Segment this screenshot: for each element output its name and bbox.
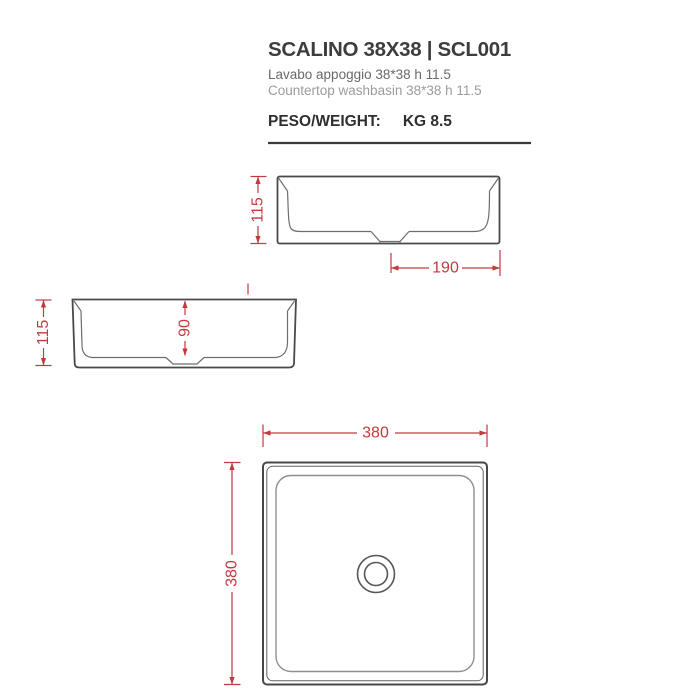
front-rim-chamfer-left bbox=[279, 178, 288, 191]
plan-view: 380 380 bbox=[224, 425, 488, 685]
technical-drawing: 115 190 bbox=[0, 0, 700, 700]
drain-inner-circle bbox=[365, 563, 388, 586]
side-dim-inner-depth-label: 90 bbox=[177, 319, 194, 337]
side-rim-chamfer-right bbox=[288, 301, 295, 311]
front-basin-wall-left bbox=[288, 191, 372, 232]
side-view: 115 90 bbox=[35, 284, 296, 368]
front-dim-drain-label: 190 bbox=[432, 260, 459, 277]
front-view: 115 190 bbox=[250, 177, 501, 277]
plan-rim-line bbox=[267, 466, 483, 681]
front-dim-drain-offset: 190 bbox=[391, 250, 500, 277]
plan-dim-width: 380 bbox=[263, 425, 487, 448]
plan-outline bbox=[263, 463, 487, 685]
drain-outer-circle bbox=[358, 556, 395, 593]
front-dim-height-label: 115 bbox=[250, 197, 267, 223]
front-drain-profile bbox=[371, 232, 409, 244]
plan-dim-depth: 380 bbox=[224, 463, 241, 685]
plan-dim-width-label: 380 bbox=[362, 425, 389, 442]
plan-dim-depth-label: 380 bbox=[224, 560, 241, 587]
side-rim-chamfer-left bbox=[74, 301, 81, 311]
side-dim-inner-depth: 90 bbox=[177, 301, 194, 357]
plan-basin-opening bbox=[276, 476, 474, 672]
drain-icon bbox=[358, 556, 395, 593]
side-dim-height: 115 bbox=[35, 300, 52, 366]
side-dim-height-label: 115 bbox=[35, 320, 52, 346]
side-basin-wall-right bbox=[204, 311, 288, 358]
front-dim-height: 115 bbox=[250, 177, 267, 244]
front-outline bbox=[278, 177, 500, 244]
front-rim-chamfer-right bbox=[490, 178, 499, 191]
spec-sheet: SCALINO 38X38 | SCL001 Lavabo appoggio 3… bbox=[0, 0, 700, 700]
front-basin-wall-right bbox=[409, 191, 490, 232]
side-basin-wall-left bbox=[81, 311, 166, 358]
side-drain-channel bbox=[166, 358, 204, 365]
